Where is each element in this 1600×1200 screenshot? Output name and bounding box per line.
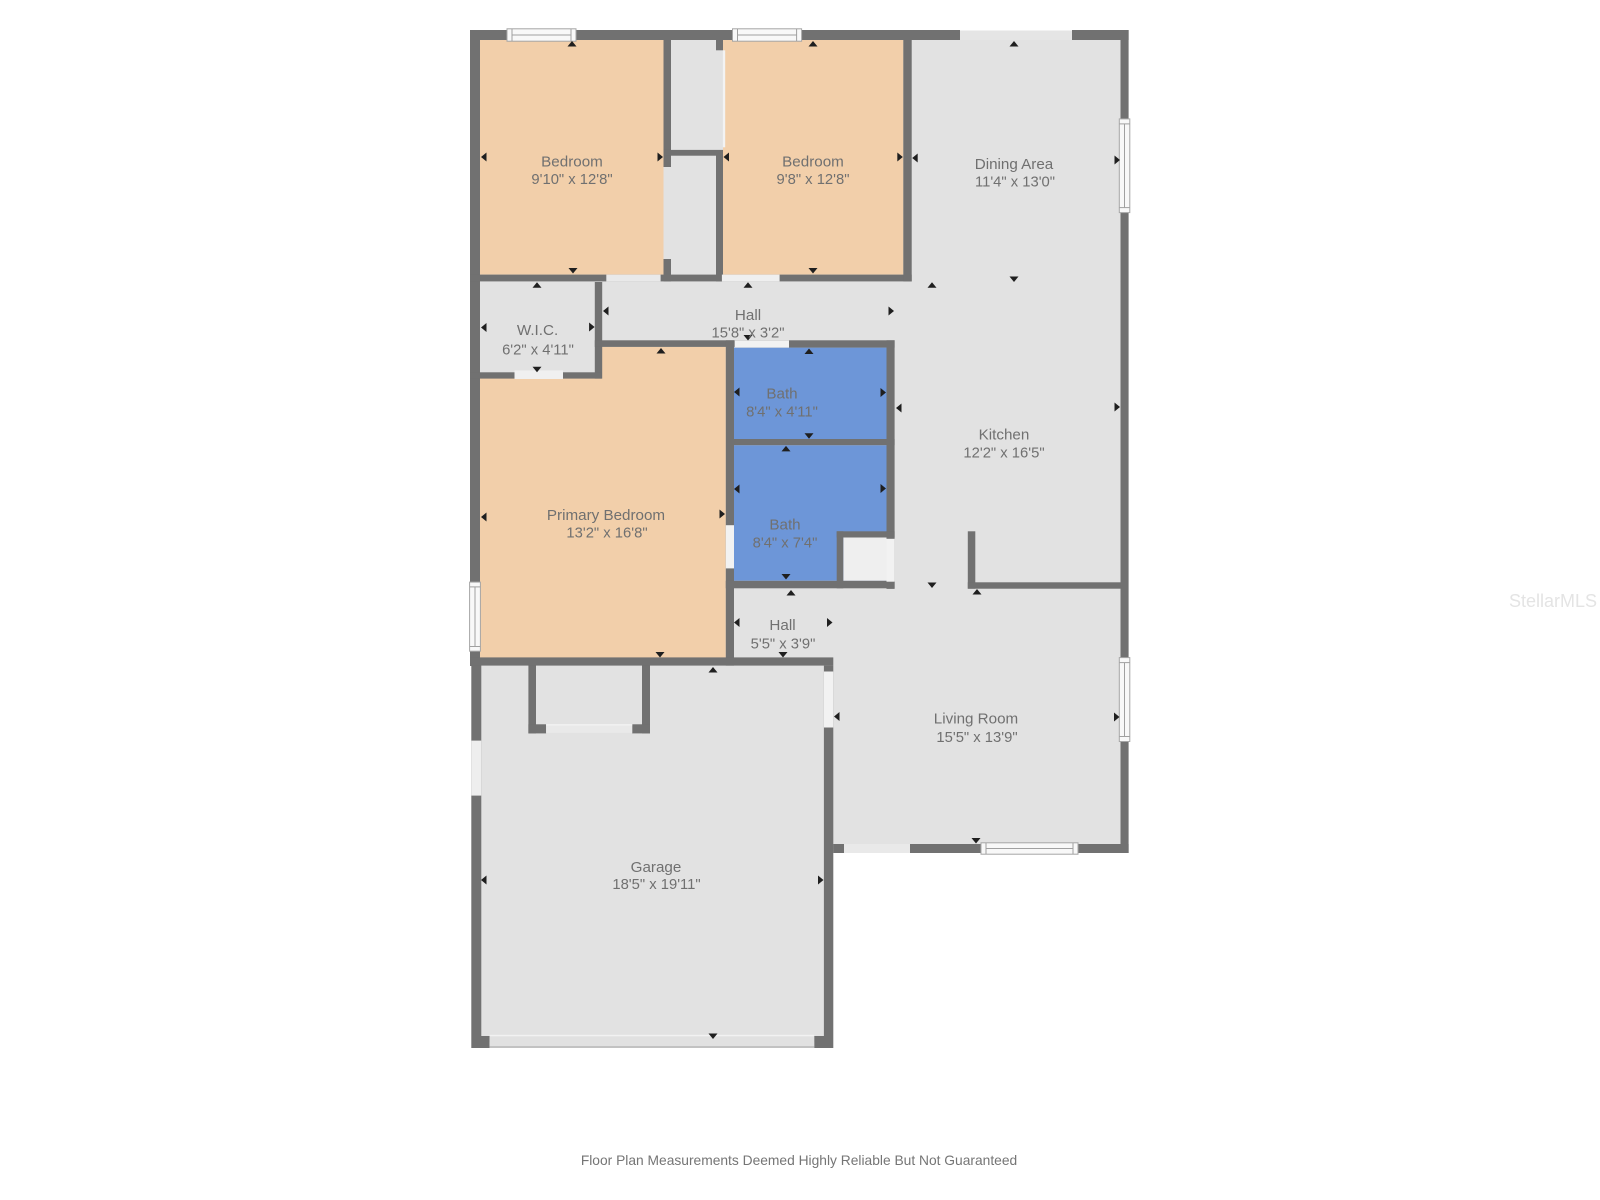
svg-text:18'5" x 19'11": 18'5" x 19'11" xyxy=(612,877,700,893)
svg-text:8'4" x 4'11": 8'4" x 4'11" xyxy=(746,404,818,420)
svg-text:11'4" x 13'0": 11'4" x 13'0" xyxy=(975,175,1055,191)
svg-text:Bedroom: Bedroom xyxy=(782,153,844,170)
svg-text:W.I.C.: W.I.C. xyxy=(517,322,558,339)
svg-text:15'5" x 13'9": 15'5" x 13'9" xyxy=(936,730,1017,746)
svg-text:9'8" x 12'8": 9'8" x 12'8" xyxy=(777,172,850,188)
svg-text:8'4" x 7'4": 8'4" x 7'4" xyxy=(753,535,818,551)
svg-text:Bath: Bath xyxy=(769,517,800,534)
svg-text:Bath: Bath xyxy=(766,386,797,403)
svg-text:Primary Bedroom: Primary Bedroom xyxy=(547,507,665,524)
svg-text:Garage: Garage xyxy=(631,859,682,876)
svg-text:Living Room: Living Room xyxy=(934,711,1018,728)
svg-text:12'2" x 16'5": 12'2" x 16'5" xyxy=(963,446,1044,462)
svg-text:Hall: Hall xyxy=(769,617,795,634)
svg-text:Floor Plan Measurements Deemed: Floor Plan Measurements Deemed Highly Re… xyxy=(581,1153,1017,1168)
svg-text:9'10" x 12'8": 9'10" x 12'8" xyxy=(531,172,612,188)
svg-text:StellarMLS: StellarMLS xyxy=(1509,591,1597,611)
svg-text:6'2" x 4'11": 6'2" x 4'11" xyxy=(502,343,574,359)
svg-text:Dining Area: Dining Area xyxy=(975,156,1054,173)
svg-text:13'2" x 16'8": 13'2" x 16'8" xyxy=(566,525,647,541)
svg-text:Hall: Hall xyxy=(735,307,761,324)
svg-text:Kitchen: Kitchen xyxy=(979,427,1030,444)
svg-text:Bedroom: Bedroom xyxy=(541,153,603,170)
svg-text:15'8" x 3'2": 15'8" x 3'2" xyxy=(712,326,785,342)
svg-text:5'5" x 3'9": 5'5" x 3'9" xyxy=(751,636,816,652)
